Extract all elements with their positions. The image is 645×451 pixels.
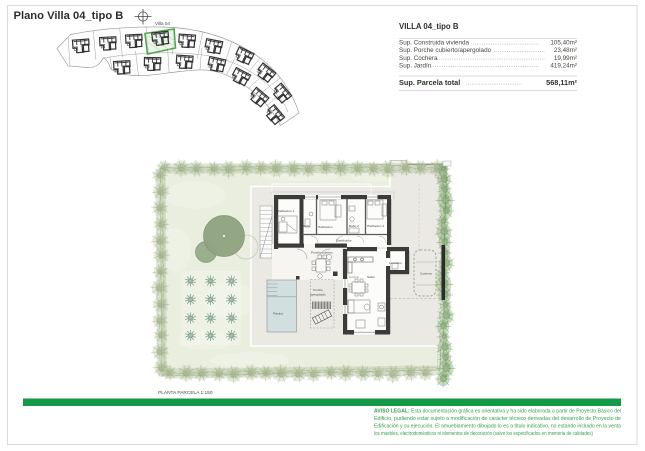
svg-text:Villa 04: Villa 04 [155, 21, 170, 26]
svg-text:568,11m²: 568,11m² [546, 78, 577, 87]
svg-text:105,40m²: 105,40m² [550, 40, 577, 47]
svg-text:Sup. Jardín: Sup. Jardín [399, 62, 432, 69]
svg-text:Salón: Salón [367, 275, 375, 279]
svg-text:Sup. Construida vivienda: Sup. Construida vivienda [399, 40, 470, 47]
svg-text:..............................: ........................................… [431, 62, 539, 69]
svg-text:Piscina: Piscina [273, 312, 283, 316]
svg-text:Habitación: Habitación [318, 225, 333, 229]
svg-text:apergolado: apergolado [310, 293, 326, 297]
svg-text:Distribuidor: Distribuidor [336, 239, 352, 243]
svg-text:419,24m²: 419,24m² [550, 62, 577, 69]
svg-text:............................: ............................ [494, 47, 545, 54]
svg-text:..............................: ........................................… [437, 55, 545, 62]
svg-text:Cocina: Cocina [349, 275, 359, 279]
svg-text:los muebles, electrodomésticos: los muebles, electrodomésticos ni elemen… [374, 431, 593, 437]
svg-text:Edificio, pudiendo estar sujet: Edificio, pudiendo estar sujeto a modifi… [374, 416, 621, 422]
svg-text:Sup. Parcela total: Sup. Parcela total [399, 78, 460, 87]
svg-text:Habitación 1: Habitación 1 [277, 209, 294, 213]
svg-text:Baño 2: Baño 2 [349, 224, 359, 228]
svg-text:19,99m²: 19,99m² [554, 55, 577, 62]
svg-text:..............................: ...................................... [471, 39, 539, 46]
svg-text:VILLA 04_tipo B: VILLA 04_tipo B [399, 22, 459, 31]
svg-text:Sup. Cochera: Sup. Cochera [399, 55, 438, 62]
svg-text:Porche: Porche [313, 288, 323, 292]
svg-text:..............................: ............................... [466, 80, 522, 87]
svg-text:Baño: Baño [303, 224, 311, 228]
svg-text:Habitación 2: Habitación 2 [367, 224, 384, 228]
svg-text:PLANTA PARCELA 1:150: PLANTA PARCELA 1:150 [158, 390, 213, 396]
svg-text:Edificación y su ejecución. El: Edificación y su ejecución. El amueblami… [374, 423, 622, 429]
svg-text:AVISO LEGAL: Esta documentació: AVISO LEGAL: Esta documentación gráfica … [374, 408, 621, 414]
svg-text:Cochera: Cochera [420, 272, 432, 276]
svg-text:Porche cubierto: Porche cubierto [311, 251, 333, 255]
svg-text:Plano Villa 04_tipo B: Plano Villa 04_tipo B [14, 10, 124, 22]
svg-text:Sup. Porche cubierto/apergolad: Sup. Porche cubierto/apergolado [399, 47, 492, 54]
svg-text:23,48m²: 23,48m² [554, 47, 577, 54]
